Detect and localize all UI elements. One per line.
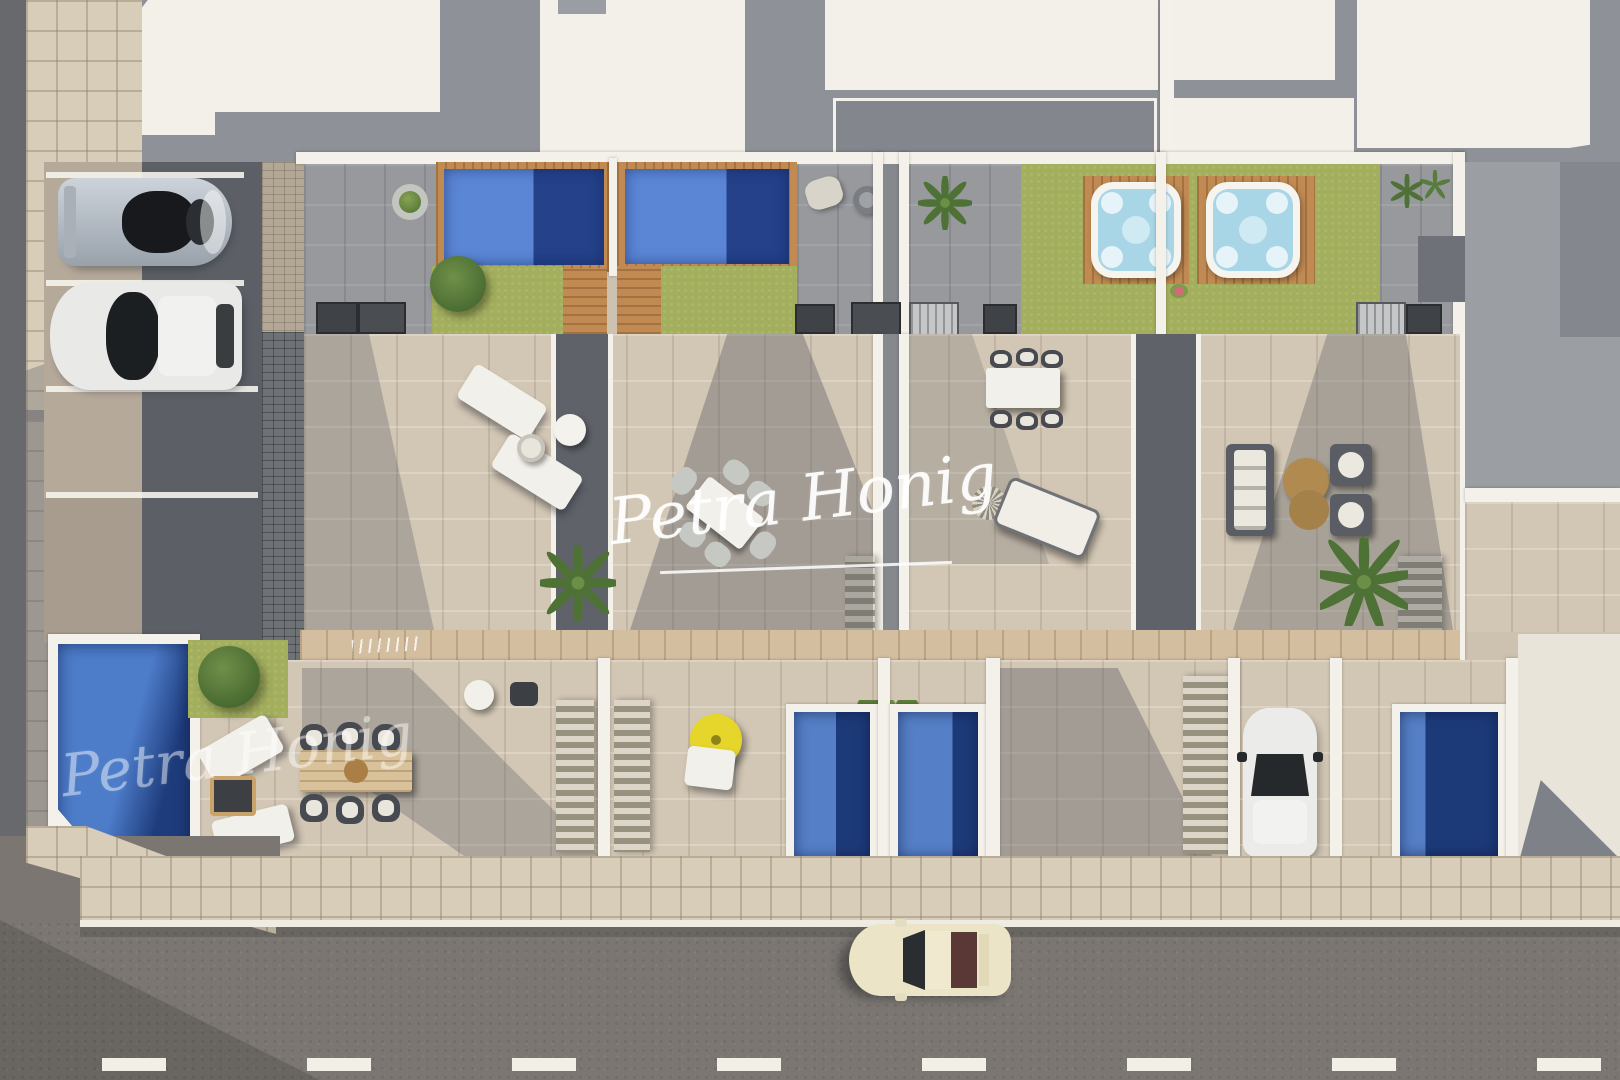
car-rear-window bbox=[216, 304, 234, 368]
plunge-pool bbox=[794, 712, 870, 858]
pool-steps bbox=[561, 268, 607, 334]
lane-dash bbox=[102, 1058, 166, 1071]
garden-tree bbox=[198, 646, 260, 708]
chair bbox=[1041, 410, 1063, 428]
driveway-car bbox=[1243, 708, 1319, 860]
car-rear-wing bbox=[64, 186, 76, 258]
car-trunk-vent bbox=[979, 934, 989, 986]
bbq-unit bbox=[358, 302, 406, 334]
roof-block bbox=[1357, 0, 1590, 148]
unit-b-lawn bbox=[661, 266, 797, 334]
hot-tub-center bbox=[1122, 216, 1150, 244]
entry-stairs bbox=[614, 700, 650, 852]
bbq-unit bbox=[316, 302, 358, 334]
chair bbox=[1041, 350, 1063, 368]
hot-tub-seat bbox=[1216, 246, 1238, 268]
car-windshield bbox=[1251, 754, 1309, 796]
side-passage-cd bbox=[1131, 334, 1201, 630]
car-mirror bbox=[1237, 752, 1247, 762]
car-windshield bbox=[106, 292, 160, 380]
chair bbox=[1016, 348, 1038, 366]
hot-tub-1 bbox=[1091, 182, 1181, 278]
rooftop-pool-1 bbox=[444, 169, 604, 265]
roof-block bbox=[825, 0, 1158, 90]
entry-stairs bbox=[1183, 676, 1229, 854]
lane-dash bbox=[717, 1058, 781, 1071]
bush bbox=[399, 191, 421, 213]
roof-shadow-strip bbox=[1335, 0, 1357, 98]
neighbor-wall bbox=[1465, 488, 1620, 502]
roof-shadow-strip bbox=[1590, 0, 1620, 148]
round-table bbox=[554, 414, 586, 446]
chair bbox=[300, 794, 328, 822]
aerial-render: Petra Honig Petra Honig bbox=[0, 0, 1620, 1080]
cream-car bbox=[845, 924, 1015, 1002]
garden-tree bbox=[430, 256, 486, 312]
coffee-table bbox=[1289, 490, 1329, 530]
car-roof bbox=[158, 296, 216, 376]
neighbor-yard bbox=[1518, 634, 1620, 860]
lane-dash bbox=[1537, 1058, 1601, 1071]
chair bbox=[336, 796, 364, 824]
roof-block bbox=[540, 0, 745, 162]
neighbor-patio bbox=[1465, 502, 1620, 632]
roof-wall bbox=[1160, 0, 1174, 162]
dining-table bbox=[986, 368, 1060, 408]
armchair bbox=[1330, 444, 1372, 486]
plunge-pool bbox=[1400, 712, 1498, 856]
sofa-cushions bbox=[1234, 450, 1266, 530]
roof-overhang bbox=[1418, 236, 1465, 302]
car-mirror bbox=[895, 993, 907, 1001]
lane-dash bbox=[307, 1058, 371, 1071]
car-rear-window bbox=[951, 932, 977, 988]
hot-tub-seat bbox=[1266, 192, 1288, 214]
chair bbox=[990, 350, 1012, 368]
chair bbox=[372, 794, 400, 822]
armchair-cushion bbox=[1338, 502, 1364, 528]
car-windshield bbox=[903, 930, 925, 990]
image-edge-strip bbox=[0, 0, 26, 838]
armchair bbox=[1330, 494, 1372, 536]
bbq-unit bbox=[795, 304, 835, 334]
flower-bush bbox=[1170, 284, 1188, 298]
outdoor-sofa bbox=[1226, 444, 1274, 536]
car-roof bbox=[1253, 800, 1307, 844]
hot-tub-seat bbox=[1101, 192, 1123, 214]
car-mirror bbox=[895, 919, 907, 927]
hot-tub-seat bbox=[1266, 246, 1288, 268]
sun-lounger bbox=[684, 745, 737, 791]
bbq-unit bbox=[1406, 304, 1442, 334]
roof-block bbox=[1174, 0, 1354, 80]
bbq-unit bbox=[983, 304, 1017, 334]
road bbox=[0, 920, 1620, 1080]
silver-car bbox=[58, 178, 232, 270]
hot-tub-2 bbox=[1206, 182, 1300, 278]
chair bbox=[1016, 412, 1038, 430]
round-table bbox=[464, 680, 494, 710]
car-hood-highlight bbox=[200, 190, 226, 254]
palm-plant bbox=[918, 176, 972, 230]
white-car bbox=[50, 282, 246, 394]
car-canopy bbox=[122, 191, 196, 253]
chair bbox=[990, 410, 1012, 428]
car-roof bbox=[925, 931, 951, 989]
palm-plant bbox=[1420, 170, 1450, 200]
rooftop-pool-2 bbox=[625, 169, 789, 264]
hot-tub-center bbox=[1239, 216, 1267, 244]
roof-vent bbox=[558, 0, 606, 14]
entry-stairs bbox=[556, 700, 594, 852]
palm-tree bbox=[1320, 538, 1408, 626]
roof-block bbox=[1174, 98, 1354, 158]
bbq-grill bbox=[909, 302, 959, 336]
hot-tub-seat bbox=[1101, 246, 1123, 268]
pool-steps bbox=[617, 266, 661, 334]
plunge-pool bbox=[898, 712, 978, 858]
lane-dash bbox=[922, 1058, 986, 1071]
side-table bbox=[517, 434, 545, 462]
neighbor-shadow bbox=[1560, 162, 1620, 337]
lane-dash bbox=[1332, 1058, 1396, 1071]
palm-plant bbox=[1390, 174, 1424, 208]
pool-divider-wall bbox=[609, 158, 617, 276]
sidewalk bbox=[80, 856, 1620, 922]
palm-plant bbox=[540, 545, 616, 621]
hot-tub-seat bbox=[1216, 192, 1238, 214]
parking-apron bbox=[44, 498, 142, 643]
roof-shadow-strip bbox=[1174, 80, 1359, 98]
car-mirror bbox=[1313, 752, 1323, 762]
bbq-unit bbox=[851, 302, 901, 336]
roof-block bbox=[215, 0, 440, 112]
wood-walkway bbox=[300, 630, 1460, 660]
lane-dash bbox=[512, 1058, 576, 1071]
parasol-pole bbox=[711, 735, 721, 745]
lane-dash bbox=[1127, 1058, 1191, 1071]
armchair-cushion bbox=[1338, 452, 1364, 478]
paver-strip-light bbox=[262, 162, 304, 332]
bbq-grill bbox=[1356, 302, 1406, 336]
chair bbox=[510, 682, 538, 706]
